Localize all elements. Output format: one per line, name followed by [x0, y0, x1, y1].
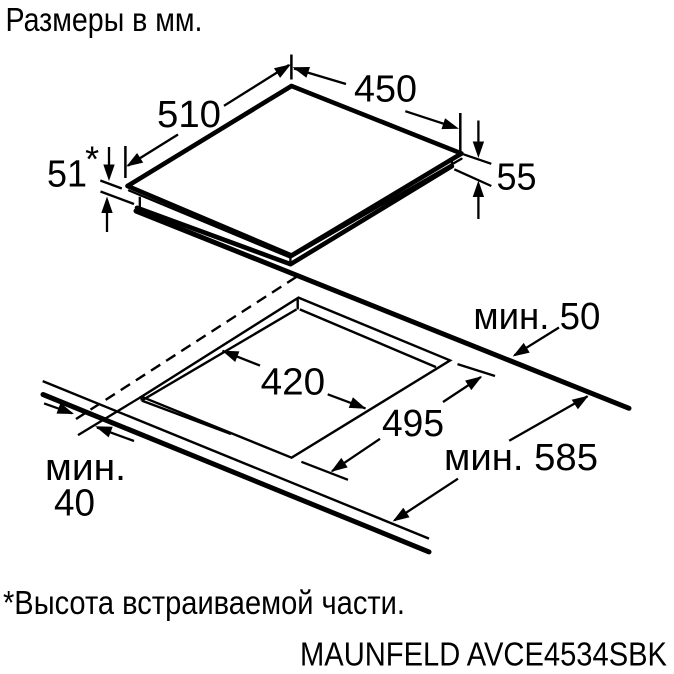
- svg-text:Размеры в мм.: Размеры в мм.: [6, 2, 203, 39]
- svg-text:*: *: [85, 139, 99, 180]
- svg-text:мин. 585: мин. 585: [444, 437, 598, 479]
- svg-text:51: 51: [47, 154, 87, 196]
- svg-text:55: 55: [497, 157, 537, 199]
- svg-text:420: 420: [261, 361, 326, 403]
- svg-text:MAUNFELD AVCE4534SBK: MAUNFELD AVCE4534SBK: [300, 636, 667, 673]
- svg-text:*Высота встраиваемой части.: *Высота встраиваемой части.: [3, 585, 405, 622]
- svg-text:450: 450: [354, 69, 417, 111]
- svg-text:510: 510: [157, 94, 221, 136]
- svg-text:40: 40: [54, 483, 95, 525]
- svg-text:495: 495: [382, 403, 444, 445]
- svg-text:мин. 50: мин. 50: [473, 296, 600, 338]
